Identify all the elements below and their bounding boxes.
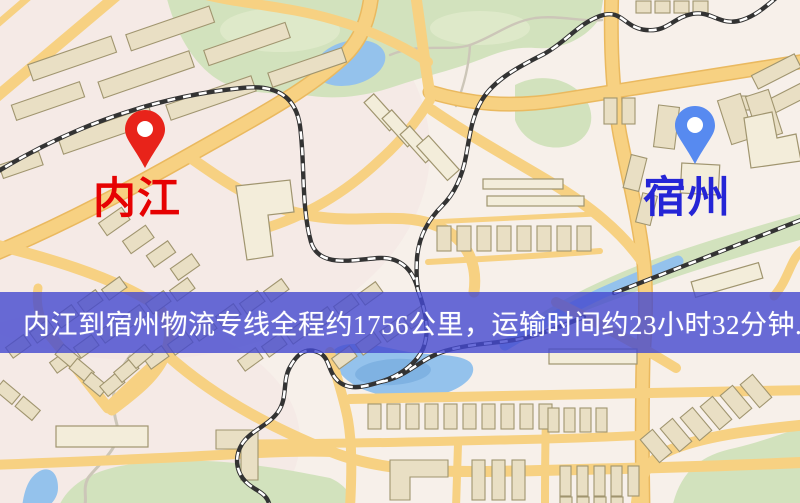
route-info-banner: 内江到宿州物流专线全程约1756公里，运输时间约23小时32分钟. <box>0 292 800 353</box>
destination-pin-icon <box>670 104 720 166</box>
origin-label: 内江 <box>93 178 181 221</box>
origin-pin-body <box>125 110 165 168</box>
origin-pin-hole <box>137 121 153 137</box>
map-background <box>0 0 800 503</box>
route-info-text: 内江到宿州物流专线全程约1756公里，运输时间约23小时32分钟. <box>23 303 800 342</box>
origin-pin-icon <box>120 108 170 170</box>
destination-pin-body <box>675 106 715 164</box>
logistics-route-map-image: 内江 宿州 内江到宿州物流专线全程约1756公里，运输时间约23小时32分钟. <box>0 0 800 503</box>
destination-pin-hole <box>687 117 703 133</box>
destination-label: 宿州 <box>643 177 731 220</box>
